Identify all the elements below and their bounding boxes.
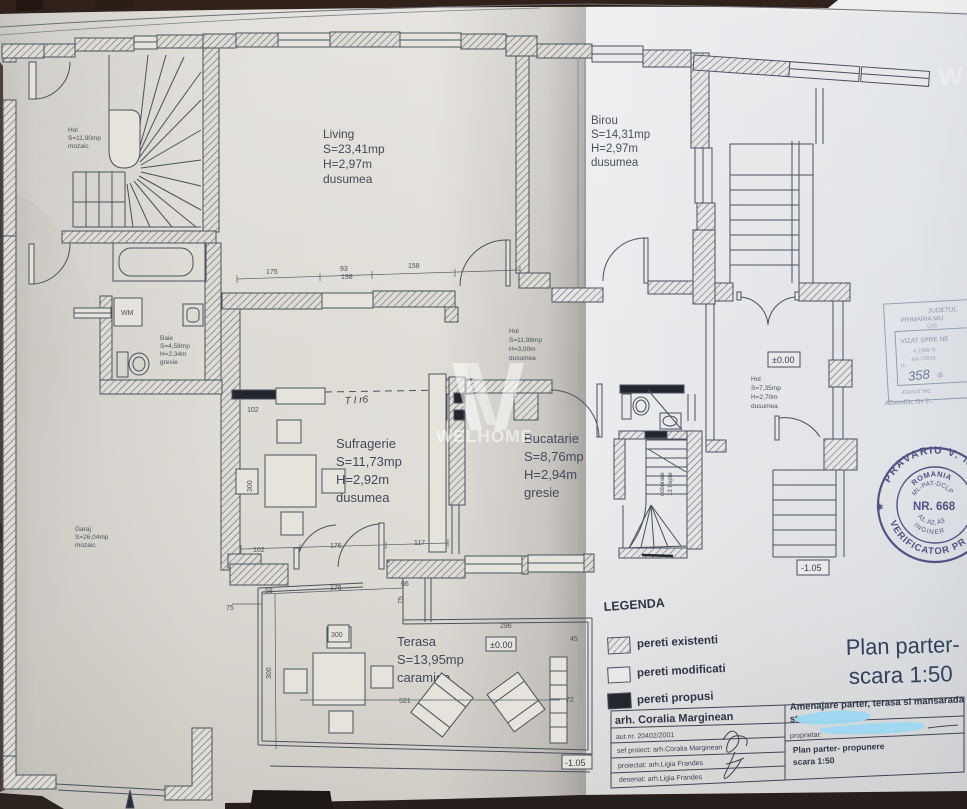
svg-text:S=8,76mp: S=8,76mp bbox=[524, 449, 584, 464]
svg-text:175: 175 bbox=[266, 269, 278, 276]
svg-text:scara 1:50: scara 1:50 bbox=[848, 661, 953, 689]
svg-text:scara 1:50: scara 1:50 bbox=[793, 755, 835, 767]
svg-text:mozaic: mozaic bbox=[75, 542, 96, 549]
svg-text:coborare: coborare bbox=[660, 472, 666, 496]
svg-text:Baie: Baie bbox=[160, 335, 173, 342]
svg-text:S=7,35mp: S=7,35mp bbox=[751, 385, 781, 392]
svg-text:✱: ✱ bbox=[876, 502, 884, 512]
svg-text:dusumea: dusumea bbox=[336, 490, 390, 505]
svg-text:-1.05: -1.05 bbox=[801, 563, 822, 573]
svg-text:176: 176 bbox=[330, 543, 342, 550]
svg-text:WELHOME: WELHOME bbox=[436, 426, 533, 446]
svg-text:S=11,98mp: S=11,98mp bbox=[509, 337, 542, 344]
svg-text:NR. 668: NR. 668 bbox=[913, 501, 956, 513]
svg-text:102: 102 bbox=[253, 547, 265, 554]
svg-text:±0.00: ±0.00 bbox=[772, 355, 794, 365]
svg-text:102: 102 bbox=[247, 407, 259, 414]
svg-text:proprietar:: proprietar: bbox=[790, 732, 822, 740]
svg-text:S=26,04mp: S=26,04mp bbox=[75, 534, 109, 541]
svg-text:H=2,97m: H=2,97m bbox=[591, 143, 638, 155]
svg-text:Hol: Hol bbox=[751, 376, 761, 383]
svg-text:mozaic: mozaic bbox=[68, 143, 89, 150]
svg-text:Nr: Nr bbox=[901, 363, 907, 369]
svg-text:93: 93 bbox=[340, 266, 348, 273]
svg-text:Plan parter-: Plan parter- bbox=[845, 632, 960, 660]
svg-text:dusumea: dusumea bbox=[323, 172, 373, 186]
svg-text:GIB: GIB bbox=[927, 323, 938, 330]
svg-text:S=13,95mp: S=13,95mp bbox=[397, 652, 464, 667]
svg-text:300: 300 bbox=[266, 667, 273, 679]
svg-text:75: 75 bbox=[398, 596, 405, 604]
svg-text:Garaj: Garaj bbox=[75, 526, 91, 533]
svg-text:198: 198 bbox=[341, 274, 353, 281]
svg-text:S=4,58mp: S=4,58mp bbox=[160, 343, 190, 350]
svg-text:ani 10928: ani 10928 bbox=[911, 355, 935, 362]
svg-text:358: 358 bbox=[907, 366, 931, 384]
svg-text:Living: Living bbox=[323, 127, 354, 141]
svg-text:gresie: gresie bbox=[524, 485, 559, 500]
svg-text:13 trepte: 13 trepte bbox=[668, 472, 674, 496]
svg-text:dusumea: dusumea bbox=[591, 157, 639, 169]
svg-text:H=2,94m: H=2,94m bbox=[524, 467, 577, 482]
svg-text:296: 296 bbox=[500, 623, 512, 630]
svg-text:di: di bbox=[937, 372, 943, 379]
svg-text:gresie: gresie bbox=[160, 359, 178, 366]
svg-text:75: 75 bbox=[226, 605, 234, 612]
svg-text:±0.00: ±0.00 bbox=[490, 640, 512, 650]
svg-text:Hol: Hol bbox=[509, 328, 519, 335]
svg-text:Sufragerie: Sufragerie bbox=[336, 436, 396, 451]
svg-text:45: 45 bbox=[570, 636, 578, 643]
svg-text:117: 117 bbox=[414, 540, 425, 547]
svg-text:H=2,92m: H=2,92m bbox=[336, 472, 389, 487]
svg-text:WM: WM bbox=[121, 310, 134, 317]
svg-text:300: 300 bbox=[247, 480, 254, 492]
svg-text:W: W bbox=[938, 61, 963, 91]
svg-text:Hol: Hol bbox=[68, 127, 78, 134]
svg-text:Terasa: Terasa bbox=[397, 634, 437, 649]
svg-text:H=3,00m: H=3,00m bbox=[509, 346, 536, 353]
svg-text:H=2,97m: H=2,97m bbox=[323, 157, 372, 171]
svg-text:dusumea: dusumea bbox=[509, 355, 536, 362]
svg-text:H=2,34m: H=2,34m bbox=[160, 351, 187, 358]
svg-text:S=23,41mp: S=23,41mp bbox=[323, 142, 385, 156]
svg-text:S=11,90mp: S=11,90mp bbox=[68, 135, 101, 142]
svg-text:300: 300 bbox=[331, 632, 343, 639]
svg-text:dusumea: dusumea bbox=[751, 403, 778, 410]
svg-text:66: 66 bbox=[401, 581, 409, 588]
svg-text:T I r6: T I r6 bbox=[344, 394, 368, 407]
svg-text:H=2,70m: H=2,70m bbox=[751, 394, 778, 401]
svg-text:521: 521 bbox=[399, 698, 411, 705]
svg-text:72: 72 bbox=[566, 697, 574, 704]
svg-text:-1.05: -1.05 bbox=[565, 758, 586, 768]
svg-text:158: 158 bbox=[408, 263, 420, 270]
svg-text:A 1999 N: A 1999 N bbox=[913, 347, 936, 354]
svg-text:S=11,73mp: S=11,73mp bbox=[336, 454, 402, 469]
svg-text:S=14,31mp: S=14,31mp bbox=[591, 129, 650, 141]
svg-text:Birou: Birou bbox=[591, 115, 618, 127]
